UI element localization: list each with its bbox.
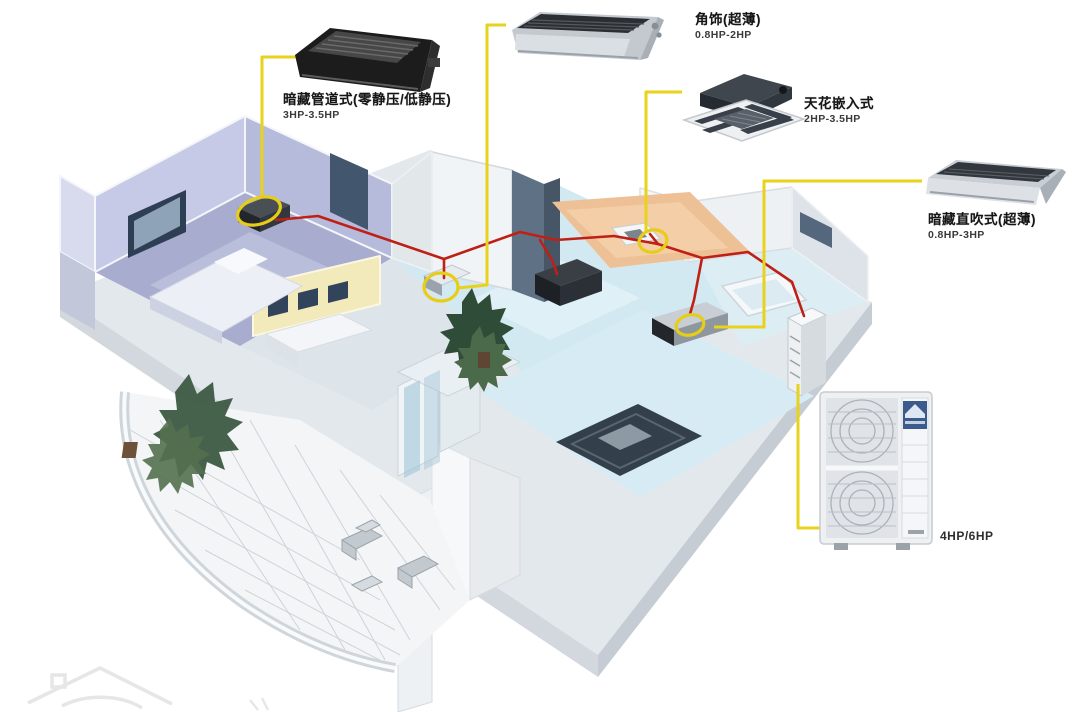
slim-ceiling-duct-unit-photo [512, 12, 664, 60]
label-slim-ceiling: 角饰(超薄) 0.8HP-2HP [695, 12, 761, 41]
label-slim-concealed: 暗藏直吹式(超薄) 0.8HP-3HP [928, 212, 1036, 241]
label-cassette: 天花嵌入式 2HP-3.5HP [804, 96, 874, 125]
product-hp-slim-concealed: 0.8HP-3HP [928, 229, 1036, 241]
product-name-cassette: 天花嵌入式 [804, 96, 874, 112]
house-logo-watermark [28, 668, 268, 710]
product-hp-outdoor: 4HP/6HP [940, 529, 994, 543]
apartment-isometric-illustration [0, 0, 1080, 712]
outdoor-unit-badge [903, 401, 927, 429]
label-concealed-duct: 暗藏管道式(零静压/低静压) 3HP-3.5HP [283, 92, 451, 121]
product-hp-concealed-duct: 3HP-3.5HP [283, 109, 451, 121]
product-hp-slim-ceiling: 0.8HP-2HP [695, 29, 761, 41]
hvac-system-diagram: 暗藏管道式(零静压/低静压) 3HP-3.5HP 角饰(超薄) 0.8HP-2H… [0, 0, 1080, 712]
outdoor-stack-unit [788, 308, 826, 396]
label-outdoor-hp: 4HP/6HP [940, 530, 994, 544]
outdoor-unit-photo [820, 392, 932, 550]
slim-concealed-unit-photo [926, 160, 1066, 205]
concealed-duct-unit-photo [295, 28, 440, 92]
product-name-concealed-duct: 暗藏管道式(零静压/低静压) [283, 92, 451, 108]
product-name-slim-concealed: 暗藏直吹式(超薄) [928, 212, 1036, 228]
product-hp-cassette: 2HP-3.5HP [804, 113, 874, 125]
ceiling-cassette-unit-photo [684, 74, 804, 141]
product-name-slim-ceiling: 角饰(超薄) [695, 12, 761, 28]
